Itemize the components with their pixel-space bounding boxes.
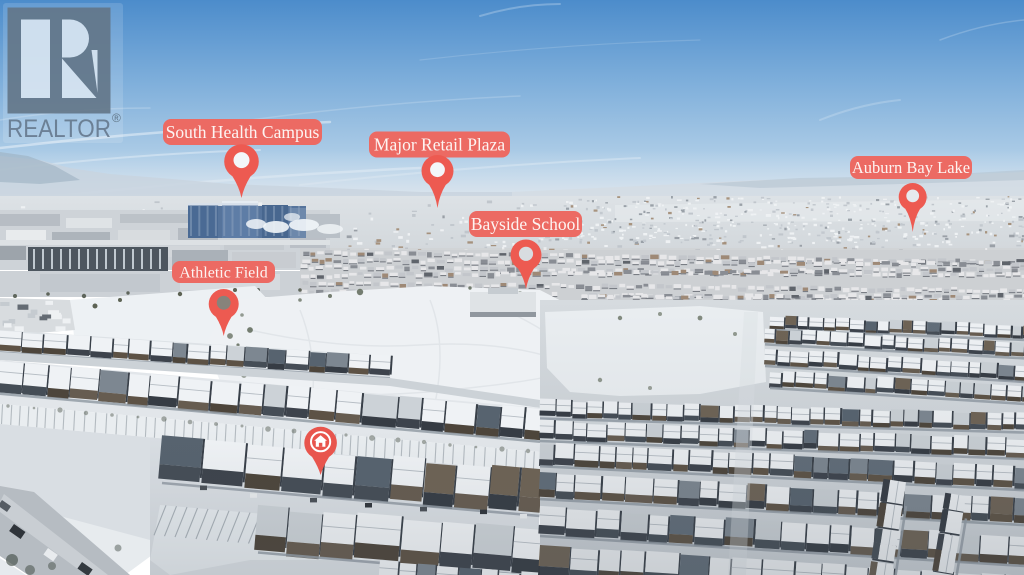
- svg-text:REALTOR: REALTOR: [7, 115, 111, 143]
- svg-text:Bayside School: Bayside School: [471, 214, 581, 234]
- svg-text:®: ®: [112, 111, 121, 125]
- svg-text:South Health Campus: South Health Campus: [166, 122, 320, 142]
- svg-text:Major Retail Plaza: Major Retail Plaza: [374, 134, 505, 154]
- svg-text:Athletic Field: Athletic Field: [179, 264, 267, 281]
- svg-text:Auburn Bay Lake: Auburn Bay Lake: [852, 158, 970, 177]
